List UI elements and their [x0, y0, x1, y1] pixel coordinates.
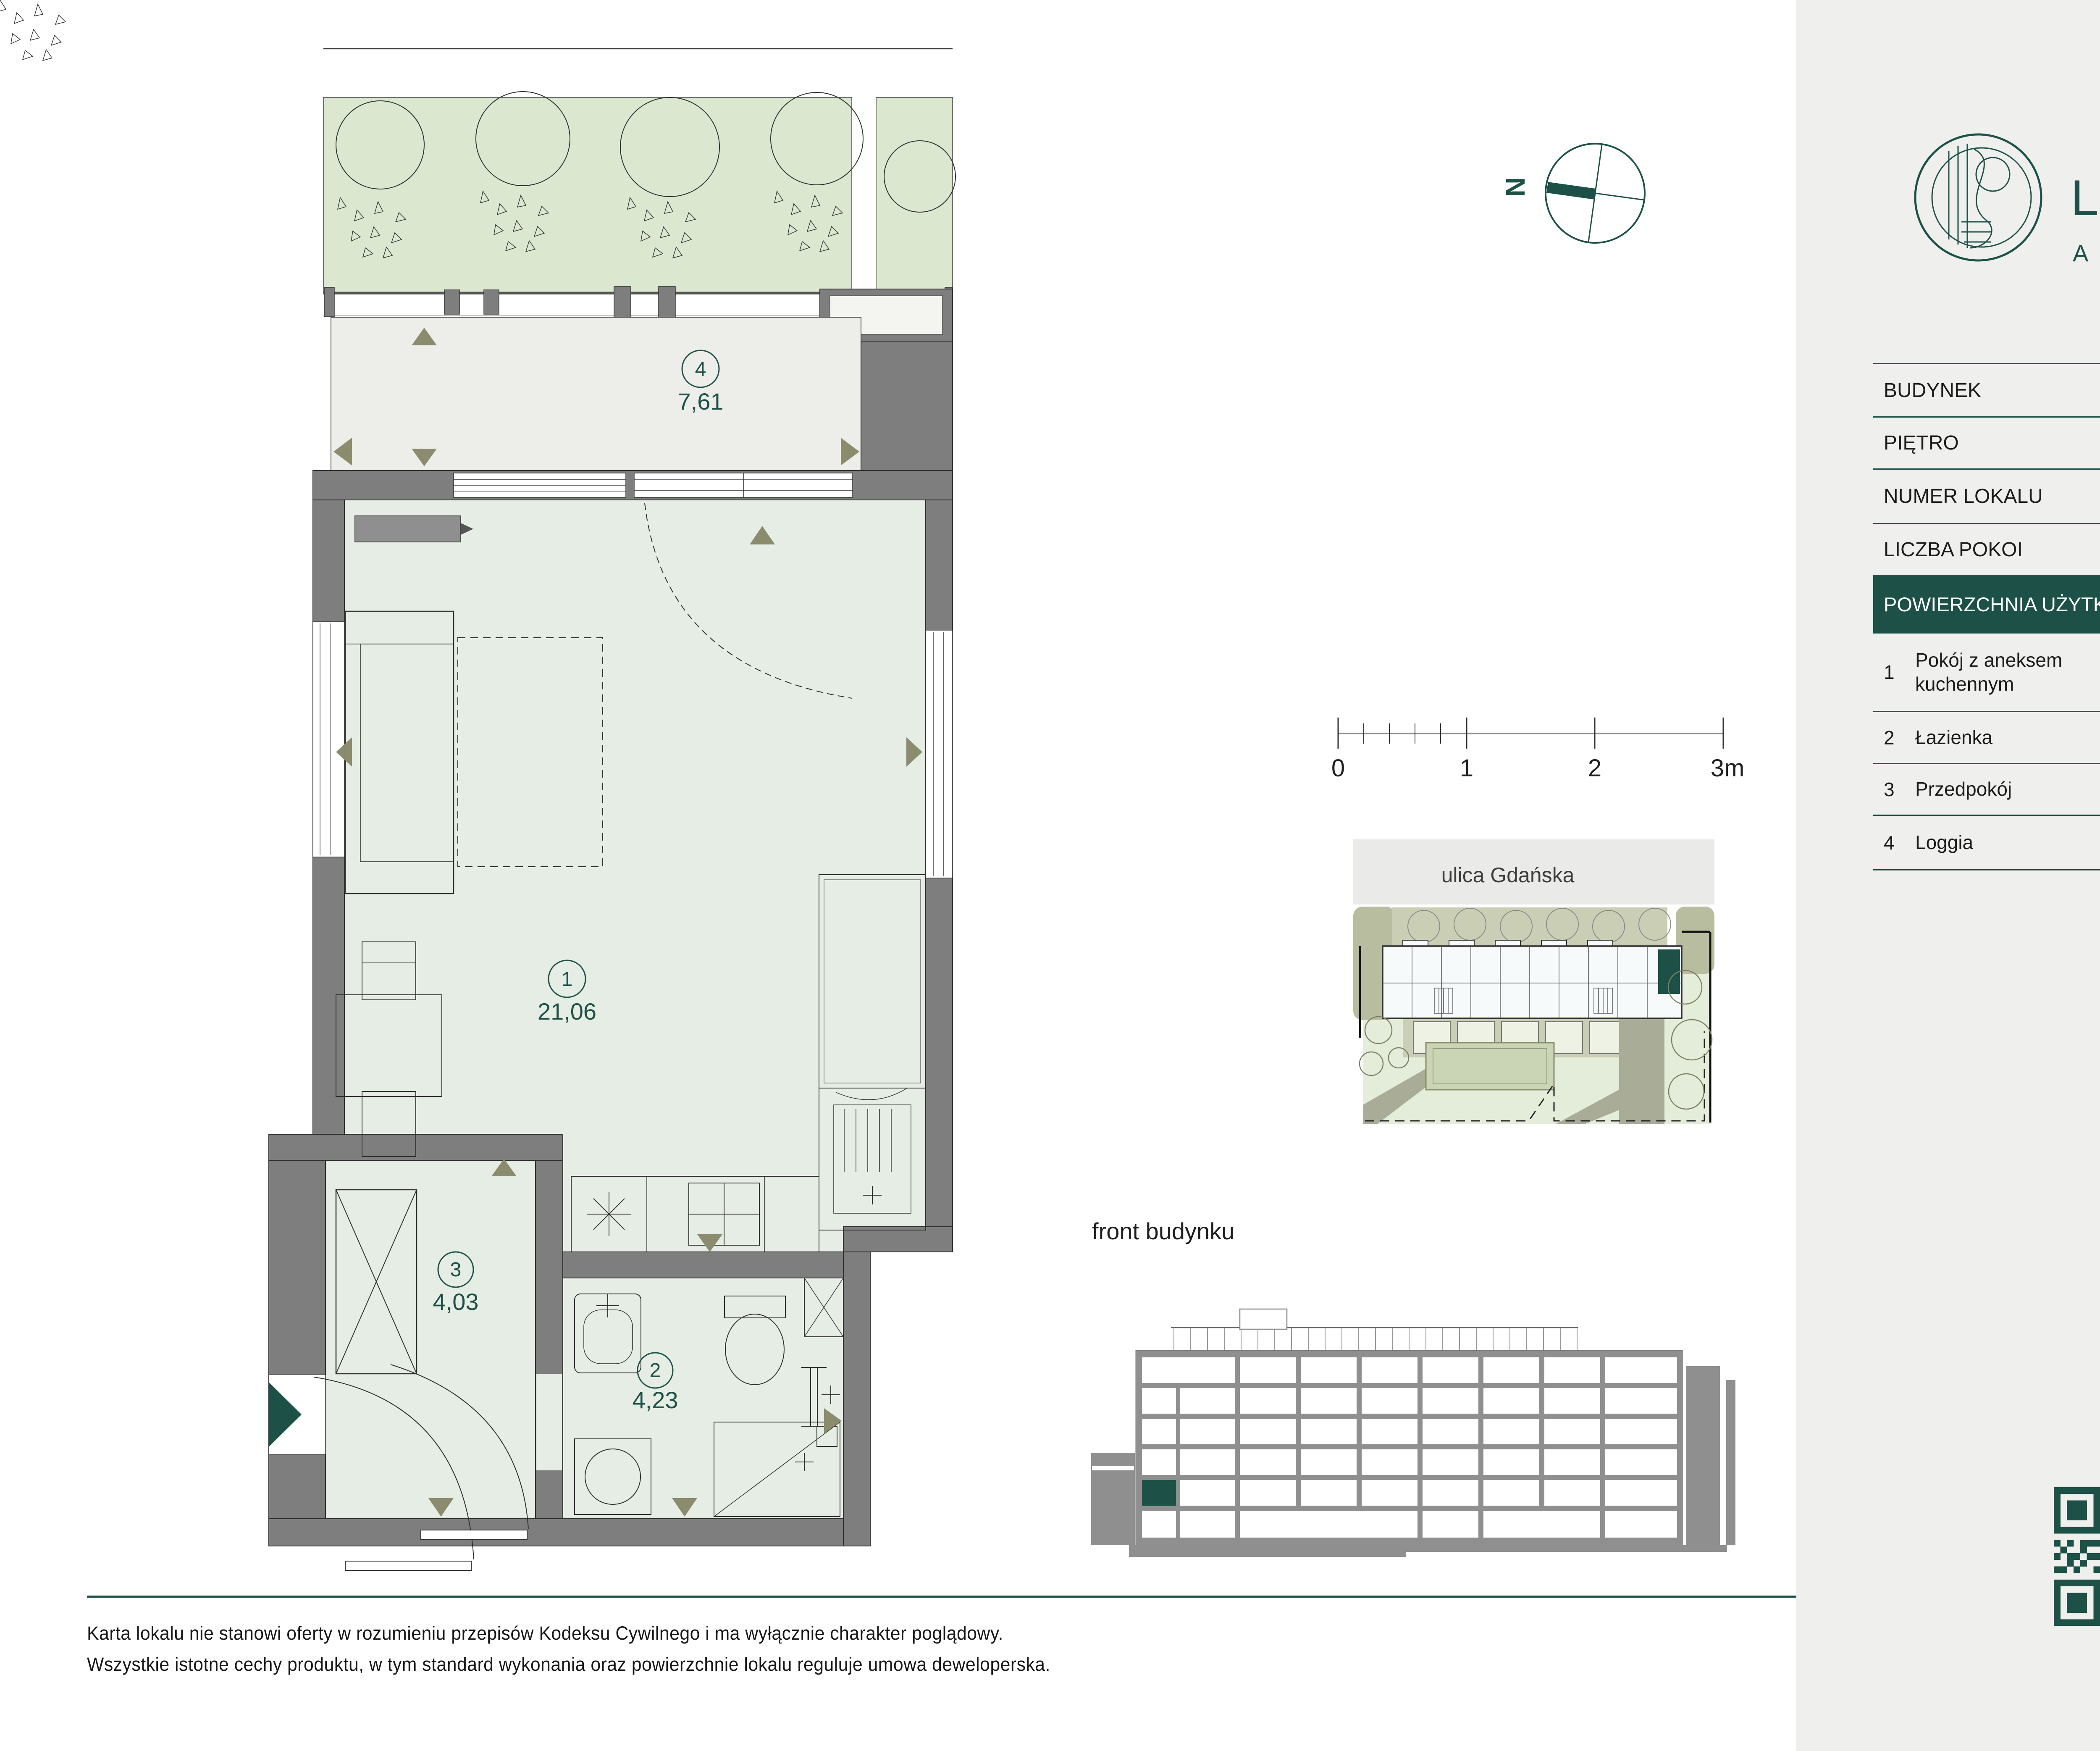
footer-disclaimer-1: Karta lokalu nie stanowi oferty w rozumi…: [87, 1622, 1003, 1644]
loggia-railing: [323, 287, 953, 341]
label-room-4-circle: [682, 350, 719, 387]
label-room-4-no: 4: [695, 358, 706, 381]
label-room-3-no: 3: [450, 1259, 462, 1281]
bed-icon: [345, 611, 454, 894]
direction-marker-icon: [336, 737, 352, 767]
room-name: Łazienka: [1915, 726, 2100, 750]
scale-tick-0: 0: [1331, 755, 1345, 782]
north-label: N: [1500, 177, 1530, 197]
path: [1619, 1019, 1664, 1124]
table-icon: [336, 995, 442, 1096]
info-label: PIĘTRO: [1884, 431, 1959, 455]
roof-box: [1240, 1309, 1287, 1329]
room-row: 3 Przedpokój 1,52 x 2,65 4,03 m²: [1873, 764, 2100, 815]
exterior-wall-top: [313, 471, 953, 500]
window-icon: [313, 622, 953, 878]
room-bathroom: [575, 1278, 843, 1517]
highlighted-unit: [1658, 949, 1680, 994]
info-label: BUDYNEK: [1884, 379, 1981, 402]
washbasin-icon: [575, 1294, 641, 1373]
direction-marker-icon: [428, 1498, 454, 1517]
scale-bar: 0 1 2 3m: [1331, 718, 1744, 782]
room-living: [336, 503, 922, 1157]
footer-disclaimer-2: Wszystkie istotne cechy produktu, w tym …: [87, 1654, 1050, 1675]
brand-subtitle: APARTAMENTY: [2073, 240, 2100, 266]
label-room-1-circle: [549, 960, 585, 997]
fridge-icon: [819, 1088, 926, 1230]
room-hall: [314, 1190, 528, 1570]
room-no: 4: [1884, 831, 1915, 854]
room-no: 3: [1884, 778, 1915, 801]
info-label: LICZBA POKOI: [1884, 538, 2023, 561]
roof-railing: [1174, 1328, 1577, 1351]
highlighted-unit-window: [1142, 1480, 1176, 1506]
exterior-walls: [269, 500, 953, 1546]
info-row-liczba-pokoi: LICZBA POKOI 1P + AK: [1873, 524, 2100, 575]
tree-icon: [1408, 908, 1671, 942]
building-footprint: [1383, 940, 1682, 1018]
room-loggia: 4 7,61: [331, 317, 953, 500]
green-feature: [1426, 1043, 1554, 1090]
info-label: NUMER LOKALU: [1884, 485, 2043, 508]
label-room-2-area: 4,23: [633, 1387, 678, 1413]
tree-icon: [1360, 970, 1712, 1109]
drawings-layer: 4 7,61: [0, 0, 2100, 1751]
floor-plan: 4 7,61: [0, 0, 955, 1570]
duct-icon: [804, 1278, 843, 1337]
table-separator: [1873, 869, 2100, 870]
interior-walls: [269, 1134, 843, 1519]
apartment-interior: [325, 500, 926, 1519]
label-room-2-no: 2: [650, 1359, 661, 1382]
kitchen-counter-tall: [819, 875, 926, 1088]
entrance-arrow-icon: [269, 1382, 302, 1447]
direction-marker-icon: [697, 1234, 722, 1252]
kitchen-counter: [571, 1176, 819, 1252]
wardrobe-icon: [336, 1190, 417, 1374]
room-no: 1: [1884, 661, 1915, 684]
sink-icon: [587, 1192, 631, 1236]
site-plan: ulica Gdańska: [1353, 839, 1714, 1124]
room-name: Pokój z aneksem kuchennym: [1915, 648, 2100, 697]
bathroom-door-opening: [536, 1374, 562, 1470]
leaves-icon: [0, 0, 66, 60]
label-room-4-area: 7,61: [678, 388, 724, 415]
patio-squares: [1413, 1022, 1627, 1054]
usable-area-label: POWIERZCHNIA UŻYTKOWA: [1884, 593, 2100, 616]
planting-band: [0, 0, 955, 294]
label-room-3-circle: [438, 1252, 473, 1287]
kitchen-annex: [491, 875, 926, 1252]
elevation-grid: [1136, 1351, 1682, 1545]
direction-marker-icon: [824, 1408, 842, 1433]
room-name: Przedpokój: [1915, 777, 2100, 802]
direction-marker-icon: [491, 1159, 517, 1176]
plot-dashed-boundary: [1365, 1031, 1704, 1121]
door-swing-arc: [314, 1377, 474, 1559]
brand-logo: LUXSFERA APARTAMENTY: [1848, 109, 2100, 294]
label-room-3-area: 4,03: [433, 1288, 479, 1315]
info-row-pietro: PIĘTRO 1: [1873, 418, 2100, 468]
door-swing-arc: [391, 1365, 528, 1529]
usable-area-bar: POWIERZCHNIA UŻYTKOWA 29,32 m²: [1873, 575, 2100, 634]
tv-unit-icon: [355, 516, 461, 542]
chair-icon: [362, 942, 416, 1000]
building-elevation: front budynku: [1091, 1218, 1735, 1557]
bush-icon: [336, 92, 955, 212]
elevation-caption: front budynku: [1092, 1218, 1234, 1244]
stove-icon: [689, 1183, 759, 1245]
street-label: ulica Gdańska: [1441, 863, 1575, 887]
door-leaf: [421, 1530, 527, 1539]
door-leaf: [345, 1561, 471, 1570]
direction-marker-icon: [906, 737, 922, 767]
chair-icon: [362, 1091, 416, 1157]
scale-tick-1: 1: [1460, 755, 1473, 782]
toilet-icon: [724, 1296, 785, 1318]
brand-name: LUXSFERA: [2071, 170, 2100, 226]
room-name: Loggia: [1915, 831, 2100, 855]
door-swing-arc: [645, 503, 852, 698]
washer-icon: [575, 1439, 651, 1514]
direction-marker-icon: [672, 1498, 697, 1517]
info-row-numer-lokalu: NUMER LOKALU A1.1.6: [1873, 470, 2100, 523]
direction-marker-icon: [333, 328, 859, 466]
info-row-budynek: BUDYNEK A: [1873, 364, 2100, 416]
room-row: 1 Pokój z aneksem kuchennym 3,93 x 5,65 …: [1873, 634, 2100, 711]
footer-divider: [87, 1596, 1796, 1598]
scale-tick-2: 2: [1588, 755, 1601, 782]
compass-icon: N: [1500, 144, 1645, 243]
room-row: 4 Loggia 4,43 x 1,66 7,61 m²: [1873, 816, 2100, 869]
logo-emblem-icon: [1915, 134, 2041, 260]
direction-marker-icon: [750, 526, 775, 544]
rug-outline: [458, 638, 603, 867]
entrance-opening: [269, 1375, 325, 1454]
room-row: 2 Łazienka 2,26 x 1,90 4,23 m²: [1873, 712, 2100, 763]
scale-tick-3: 3m: [1711, 755, 1745, 782]
label-room-2-circle: [638, 1353, 673, 1388]
qr-code: [2054, 1487, 2100, 1626]
shower-icon: [714, 1422, 840, 1517]
path: [1556, 1066, 1662, 1124]
stair-icon: [1434, 988, 1612, 1013]
room-no: 2: [1884, 726, 1915, 749]
path: [1363, 1057, 1466, 1124]
label-room-1-no: 1: [562, 968, 573, 991]
label-room-1-area: 21,06: [538, 998, 596, 1025]
